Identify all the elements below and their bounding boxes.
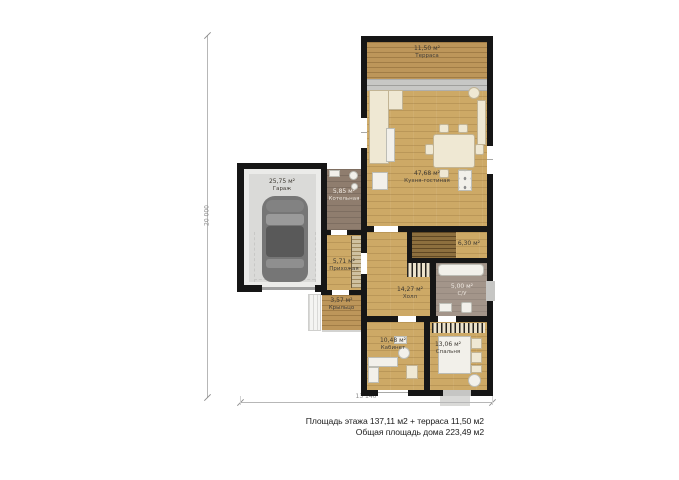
wall-stairs-bottom [407,258,487,263]
wall-garage-bottom [237,285,262,292]
bathroom-sink [439,303,452,312]
office-area: 10,48 м² [370,337,416,345]
dining-table [433,134,475,168]
door-boiler [331,230,347,235]
dining-chair [425,144,434,155]
garage-name: Гараж [252,186,312,193]
door-bedroom [438,316,456,322]
window-office [378,390,408,396]
stairs-area: 6,30 м² [452,240,486,248]
dimension-extension-line [492,396,493,405]
bathroom-area: 5,00 м² [442,283,482,291]
terrace-label: 11,50 м² Терраса [397,45,457,60]
porch-area: 3,57 м² [323,297,360,305]
nightstand [471,352,482,363]
terrace-area: 11,50 м² [397,45,457,53]
desk [368,357,398,367]
kitchen-label: 47,68 м² Кухня-гостиная [395,170,459,185]
summary-total-area: Общая площадь дома 223,49 м2 [254,427,484,438]
desk-return [368,367,379,383]
car-top-view [262,196,308,282]
garage-label: 25,75 м² Гараж [252,178,312,193]
car-hood [266,200,304,212]
kitchen-name: Кухня-гостиная [395,178,459,185]
staircase-treads [412,232,456,259]
car-roof [266,226,304,257]
dining-chair [475,144,484,155]
entry-area: 5,71 м² [326,258,362,266]
nightstand [471,338,482,349]
dimension-line-horizontal [240,402,493,403]
parking-line [254,232,255,282]
passage-kitchen-hall [374,226,398,232]
hall-label: 14,27 м² Холл [388,286,432,301]
boiler-area: 5,85 м² [326,188,362,196]
door-entrance [332,290,349,295]
water-heater [349,171,358,180]
wall-garage-top [237,163,327,169]
hall-area: 14,27 м² [388,286,432,294]
bedroom-wardrobe [432,323,485,333]
dining-chair [439,124,449,133]
bedroom-chair [468,374,481,387]
window-frame [361,132,367,133]
window-bedroom [443,390,471,396]
wall-annex-left [321,163,327,294]
wall-garage-left [237,163,244,292]
kitchen-area: 47,68 м² [395,170,459,178]
dimension-height-label: 20 000 [204,194,211,238]
nightstand [471,365,482,373]
garage-door [262,287,320,290]
entry-name: Прихожая [326,266,362,273]
bathroom-name: С/У [442,291,482,298]
boiler-name: Котельная [326,196,362,203]
car-windshield [266,214,304,225]
window-frame [378,392,408,393]
plan-summary: Площадь этажа 137,11 м2 + терраса 11,50 … [254,416,484,438]
boiler-label: 5,85 м² Котельная [326,188,362,203]
wall-office-bedroom [424,322,430,390]
office-label: 10,48 м² Кабинет [370,337,416,352]
boiler-unit [329,170,340,177]
toilet [461,302,472,313]
wall-right [487,36,493,396]
porch-label: 3,57 м² Крыльцо [323,297,360,312]
floor-plan-canvas: 20 000 13 140 [0,0,679,480]
kitchen-sink [468,87,480,99]
garage-area: 25,75 м² [252,178,312,186]
tall-cabinet [477,100,486,145]
outside-step [440,396,470,406]
bedroom-label: 13,06 м² Спальня [428,341,468,356]
hall-wardrobe [407,263,431,277]
parking-line [315,232,316,282]
coffee-table [372,172,388,190]
door-office [398,316,416,322]
window-kitchen-left [361,118,367,148]
stove [458,170,472,191]
porch-steps [308,294,321,331]
office-name: Кабинет [370,345,416,352]
window-kitchen-right [487,146,493,174]
hall-name: Холл [388,294,432,301]
summary-floor-area: Площадь этажа 137,11 м2 + терраса 11,50 … [254,416,484,427]
dimension-extension-line [240,396,241,405]
porch-name: Крыльцо [323,305,360,312]
dining-chair [458,124,468,133]
bathtub [438,264,484,276]
dimension-tick [204,394,211,401]
bathroom-label: 5,00 м² С/У [442,283,482,298]
wall-left-lower [361,175,367,396]
wall-left-upper [361,36,367,175]
bedroom-area: 13,06 м² [428,341,468,349]
entry-label: 5,71 м² Прихожая [326,258,362,273]
stairs-label: 6,30 м² [452,240,486,248]
bedroom-name: Спальня [428,349,468,356]
kitchen-island [386,128,395,162]
car-rear-window [266,259,304,268]
window-frame [487,159,493,160]
window-bathroom [486,281,495,301]
office-cabinet [406,365,418,379]
wall-terrace-top [362,36,493,42]
terrace-name: Терраса [397,53,457,60]
